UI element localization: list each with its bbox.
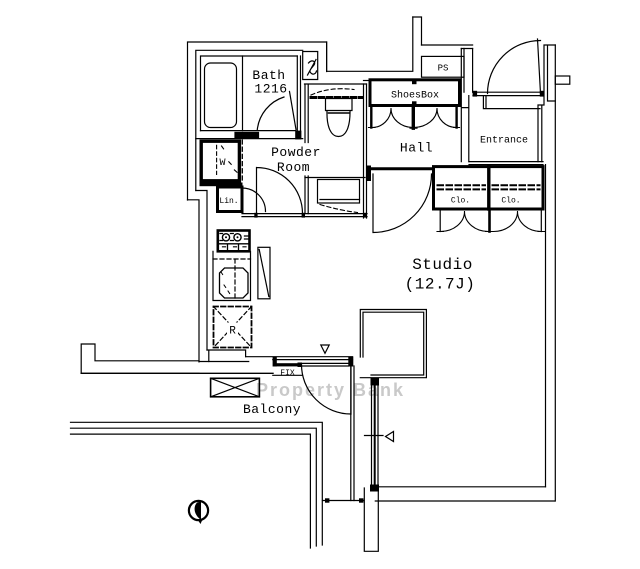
svg-text:R: R	[229, 326, 236, 338]
svg-text:1216: 1216	[254, 82, 287, 97]
svg-text:Property Bank: Property Bank	[256, 380, 405, 400]
svg-text:Balcony: Balcony	[243, 402, 301, 417]
svg-text:Powder: Powder	[271, 145, 321, 160]
svg-text:Lin.: Lin.	[219, 197, 238, 206]
svg-text:W: W	[219, 158, 225, 169]
svg-text:Clo.: Clo.	[501, 197, 520, 206]
svg-text:PS: PS	[438, 64, 449, 74]
svg-text:Hall: Hall	[400, 141, 433, 156]
svg-text:ShoesBox: ShoesBox	[391, 90, 439, 102]
svg-text:FIX: FIX	[280, 369, 295, 378]
svg-text:Room: Room	[277, 160, 310, 175]
svg-text:(12.7J): (12.7J)	[405, 276, 476, 294]
svg-text:Entrance: Entrance	[480, 136, 528, 147]
svg-text:Studio: Studio	[412, 256, 473, 274]
svg-text:Clo.: Clo.	[451, 197, 470, 206]
